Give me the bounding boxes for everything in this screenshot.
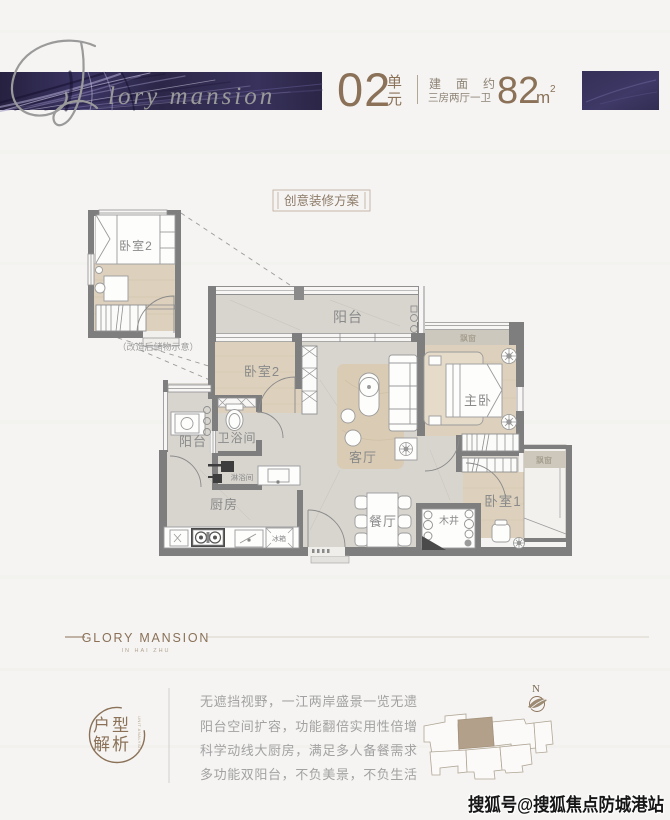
- svg-text:元: 元: [387, 91, 402, 108]
- svg-text:m: m: [536, 88, 550, 107]
- svg-text:单: 单: [387, 74, 402, 91]
- svg-text:lory mansion: lory mansion: [108, 83, 275, 110]
- svg-text:阳台: 阳台: [179, 434, 207, 449]
- svg-text:三房两厅一卫: 三房两厅一卫: [428, 91, 491, 104]
- svg-text:约: 约: [483, 76, 495, 91]
- svg-text:主卧: 主卧: [464, 393, 492, 408]
- svg-text:客厅: 客厅: [349, 450, 377, 465]
- svg-text:UNIT ANALYSIS: UNIT ANALYSIS: [137, 716, 142, 752]
- svg-text:阳台空间扩容，功能翻倍实用性倍增: 阳台空间扩容，功能翻倍实用性倍增: [200, 719, 418, 734]
- svg-text:阳台: 阳台: [333, 309, 363, 325]
- svg-text:N: N: [532, 683, 540, 695]
- svg-text:冰箱: 冰箱: [272, 534, 286, 543]
- svg-text:GLORY MANSION: GLORY MANSION: [82, 631, 211, 645]
- svg-text:建: 建: [429, 77, 441, 91]
- svg-text:无遮挡视野，一江两岸盛景一览无遗: 无遮挡视野，一江两岸盛景一览无遗: [200, 694, 418, 709]
- svg-text:科学动线大厨房，满足多人备餐需求: 科学动线大厨房，满足多人备餐需求: [200, 743, 418, 758]
- svg-text:飘窗: 飘窗: [536, 455, 552, 465]
- svg-text:卧室1: 卧室1: [484, 493, 522, 509]
- svg-text:创意装修方案: 创意装修方案: [284, 193, 360, 208]
- svg-text:卧室2: 卧室2: [119, 238, 153, 253]
- svg-text:户型: 户型: [93, 716, 131, 735]
- svg-text:02: 02: [337, 63, 391, 116]
- svg-text:（改造后储物示意）: （改造后储物示意）: [117, 341, 198, 352]
- svg-text:82: 82: [497, 70, 539, 112]
- svg-text:面: 面: [456, 77, 468, 91]
- svg-text:解析: 解析: [93, 735, 131, 754]
- svg-text:飘窗: 飘窗: [460, 333, 476, 343]
- svg-text:卫浴间: 卫浴间: [217, 431, 256, 445]
- svg-text:IN HAI ZHU: IN HAI ZHU: [121, 648, 170, 654]
- svg-text:木井: 木井: [439, 514, 459, 527]
- svg-text:2: 2: [550, 84, 556, 95]
- svg-text:厨房: 厨房: [210, 497, 238, 512]
- svg-text:多功能双阳台，不负美景，不负生活: 多功能双阳台，不负美景，不负生活: [200, 767, 418, 782]
- svg-text:淋浴间: 淋浴间: [231, 472, 254, 482]
- svg-text:卧室2: 卧室2: [244, 364, 280, 379]
- svg-text:餐厅: 餐厅: [369, 514, 397, 529]
